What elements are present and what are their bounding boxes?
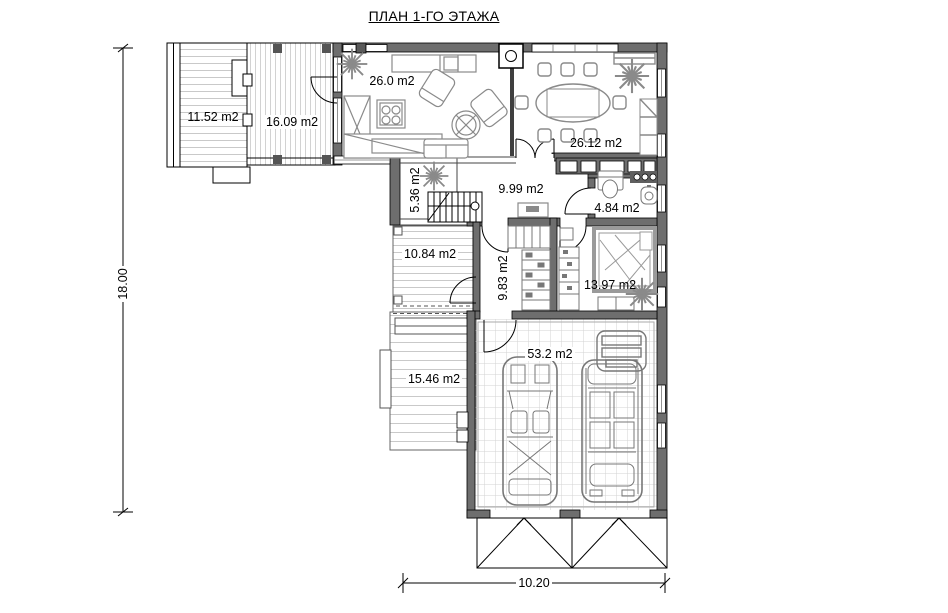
room-label-stair-hall: 5.36 m2 bbox=[408, 163, 422, 217]
room-label-bedroom: 13.97 m2 bbox=[581, 278, 639, 292]
room-label-wardrobe: 9.83 m2 bbox=[496, 253, 510, 302]
wardrobe-shelving bbox=[508, 226, 550, 310]
dimension-label-height: 18.00 bbox=[116, 266, 130, 301]
room-label-dining: 26.12 m2 bbox=[561, 136, 631, 150]
room-label-hall: 9.99 m2 bbox=[495, 182, 547, 196]
room-label-terrace: 16.09 m2 bbox=[264, 115, 320, 129]
stairs bbox=[428, 192, 482, 222]
terrace-top bbox=[243, 43, 335, 165]
living-furniture bbox=[344, 55, 509, 158]
room-label-deck-upper: 11.52 m2 bbox=[178, 110, 248, 124]
hall-furniture bbox=[518, 203, 548, 217]
plan-title: ПЛАН 1-ГО ЭТАЖА bbox=[323, 8, 545, 24]
room-label-garage: 53.2 m2 bbox=[525, 347, 574, 361]
room-label-deck-middle: 10.84 m2 bbox=[402, 247, 458, 261]
dimension-label-width: 10.20 bbox=[516, 576, 551, 590]
deck-middle bbox=[393, 226, 473, 312]
room-label-deck-lower: 15.46 m2 bbox=[406, 372, 462, 386]
floor-plan-drawing bbox=[0, 0, 948, 613]
room-label-bathroom: 4.84 m2 bbox=[591, 201, 643, 215]
garage-door-canopy bbox=[477, 518, 667, 568]
room-label-living: 26.0 m2 bbox=[357, 74, 427, 88]
floor-plan-page: ПЛАН 1-ГО ЭТАЖА 11.52 m2 16.09 m2 26.0 m… bbox=[0, 0, 948, 613]
